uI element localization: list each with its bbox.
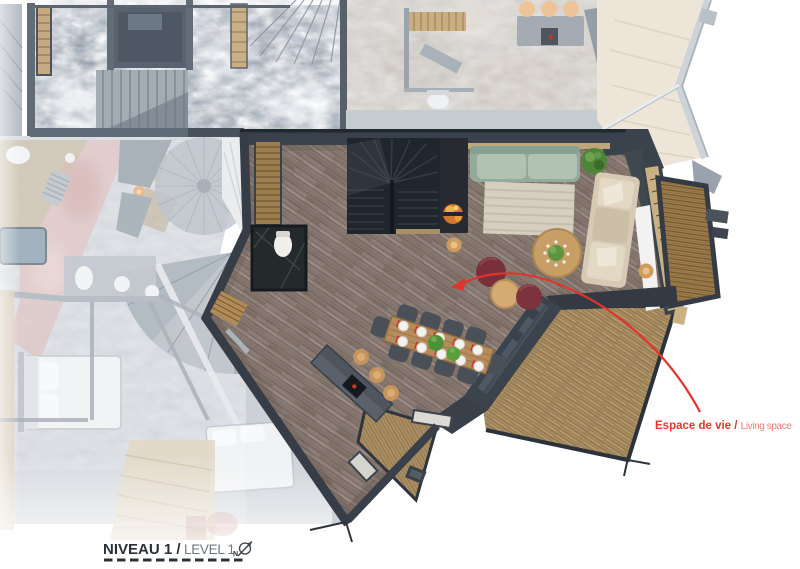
svg-text:Espace de vie / Living space: Espace de vie / Living space [655, 420, 792, 432]
svg-text:N: N [233, 551, 238, 558]
svg-text:LEVEL 1: LEVEL 1 [184, 542, 235, 557]
svg-text:NIVEAU 1 /: NIVEAU 1 / [103, 541, 181, 558]
